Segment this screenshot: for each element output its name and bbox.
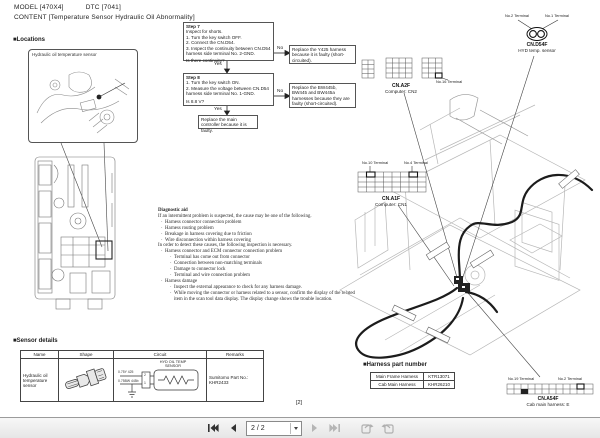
next-view-button[interactable] [380,421,394,435]
table-row: Hydraulic oil temperature sensor [21,359,264,402]
next-page-button[interactable] [308,421,322,435]
a1f-pin-grid [356,166,428,194]
page-dropdown-button[interactable] [291,427,301,430]
a2f-terminal16-label: No.16 Terminal [436,79,462,84]
wire-label-1: 0.75Y 425 [118,370,133,374]
sensor-closeup-drawing [29,61,137,141]
a1f-terminal4-label: No.4 Terminal [404,160,428,165]
last-page-button[interactable] [328,421,342,435]
harness-name-cell: Main Frame Harness [371,373,424,381]
table-row: Main Frame Harness KTR13071 [371,373,455,381]
sensor-shape-cell [59,359,114,402]
step8-yes-label: Yes [214,107,222,112]
replace-controller-box: Replace the main controller because it i… [198,115,258,129]
col-name: Name [21,351,59,359]
machine-iso-drawing [330,40,600,385]
page-number-input[interactable]: 2 / 2 [246,421,302,436]
step7-yes-label: Yes [214,62,222,67]
model-label: MODEL [470X4] [14,4,64,11]
wire-label-2: 0.75BW 445b [118,379,139,383]
pin-1-label: 1 [144,381,146,385]
page-number-label: [2] [284,400,314,406]
col-remarks: Remarks [207,351,264,359]
first-page-button[interactable] [206,421,220,435]
step7-line: harness side terminal No. 2-GND. [186,51,271,56]
locations-section-title: ■Locations [13,37,45,43]
col-shape: Shape [59,351,114,359]
a54f-pin-strip [506,382,594,395]
d54f-desc: HYD temp. sensor [510,48,564,53]
sensor-name-cell: Hydraulic oil temperature sensor [21,359,59,402]
machine-plan-drawing [28,143,140,311]
sensor-location-inset: Hydraulic oil temperature sensor [28,49,138,143]
a1f-desc: Computer: CN1 [364,202,418,207]
a2f-desc: Computer: CN2 [374,89,428,94]
a54f-terminal2-label: No.2 Terminal [558,376,582,381]
harness-part-cell: KHR26210 [424,381,455,389]
circuit-label: SENSOR [148,364,198,368]
flowchart-step8-box: Step 8 1. Turn the key switch ON. 2. Mea… [183,73,274,106]
sensor-remarks-cell: Sumitomo Part No.: KHR2433 [207,359,264,402]
harness-name-cell: Cab Main Harness [371,381,424,389]
diag-cause: Wire disconnection within harness coveri… [158,238,355,244]
flowchart-step7-box: Step 7 Inspect for shorts. 1. Turn the k… [183,22,274,61]
sensor-location-box [96,241,112,259]
table-row: Cab Main Harness KHR26210 [371,381,455,389]
a1f-terminal10-label: No.10 Terminal [362,160,388,165]
step8-line: harness side terminal No. 1-GND. [186,91,271,96]
page-display: 2 / 2 [247,425,290,432]
pdf-viewer-window: MODEL [470X4] DTC [7041] CONTENT [Temper… [0,0,600,438]
harness-part-number-table: Main Frame Harness KTR13071 Cab Main Har… [370,372,455,389]
step8-question: Is 8.8 V? [186,99,271,104]
pin-2-label: 2 [144,373,146,377]
diagnostic-aid-block: Diagnostic aid If an intermittent proble… [158,208,355,303]
inset-label: Hydraulic oil temperature sensor [32,52,97,57]
sensor-shape-drawing [63,361,109,399]
chevron-down-icon [294,427,298,430]
pdf-toolbar: 2 / 2 [0,417,600,438]
step7-no-label: No [277,46,283,51]
a54f-desc: Cab main harness: E [516,402,580,407]
step8-no-label: No [277,89,283,94]
sensor-details-title: ■Sensor details [13,338,58,344]
d54f-connector-icon [508,18,572,42]
a54f-terminal19-label: No.19 Terminal [508,376,534,381]
step7-question: Is there continuity? [186,58,271,63]
table-header-row: Name Shape Circuit Remarks [21,351,264,359]
previous-page-button[interactable] [226,421,240,435]
content-title: CONTENT [Temperature Sensor Hydraulic Oi… [14,14,195,21]
harness-part-cell: KTR13071 [424,373,455,381]
sensor-details-table: Name Shape Circuit Remarks Hydraulic oil… [20,350,264,402]
previous-view-button[interactable] [360,421,374,435]
dtc-label: DTC [7041] [86,4,121,11]
sensor-circuit-cell: HYD OIL TEMP SENSOR 0.75Y 425 0.75BW 445… [114,359,207,402]
diag-damage-item: While moving the connector or harness re… [158,291,355,303]
model-line: MODEL [470X4] DTC [7041] [14,4,121,11]
harness-tags [392,170,579,343]
col-circuit: Circuit [114,351,207,359]
harness-part-number-title: ■Harness part number [363,362,427,368]
